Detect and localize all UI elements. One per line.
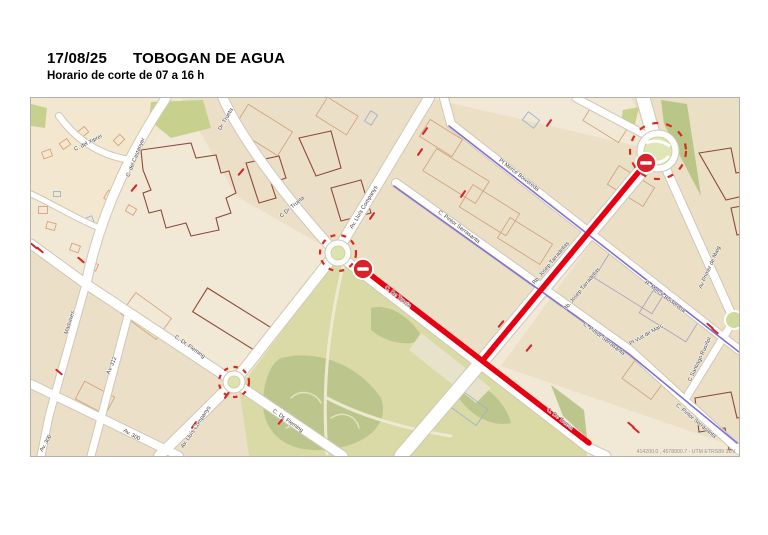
no-entry-sign-icon [636, 153, 656, 173]
map-canvas: C. del XiprerC. del CastanyerDr. TruetaC… [30, 97, 740, 457]
park-area [31, 104, 47, 128]
roundabout [725, 311, 739, 329]
no-entry-sign-icon [353, 259, 373, 279]
event-schedule: Horario de corte de 07 a 16 h [47, 70, 285, 82]
event-date: 17/08/25 [47, 50, 107, 67]
street-map: C. del XiprerC. del CastanyerDr. TruetaC… [31, 98, 739, 456]
map-coordinates: 414200.0 , 4578000.7 - UTM ETRS89 31N [637, 449, 736, 455]
page: 17/08/25TOBOGAN DE AGUA Horario de corte… [0, 0, 768, 535]
map-header: 17/08/25TOBOGAN DE AGUA Horario de corte… [47, 50, 285, 82]
title-line: 17/08/25TOBOGAN DE AGUA [47, 50, 285, 67]
event-title: TOBOGAN DE AGUA [133, 50, 285, 67]
